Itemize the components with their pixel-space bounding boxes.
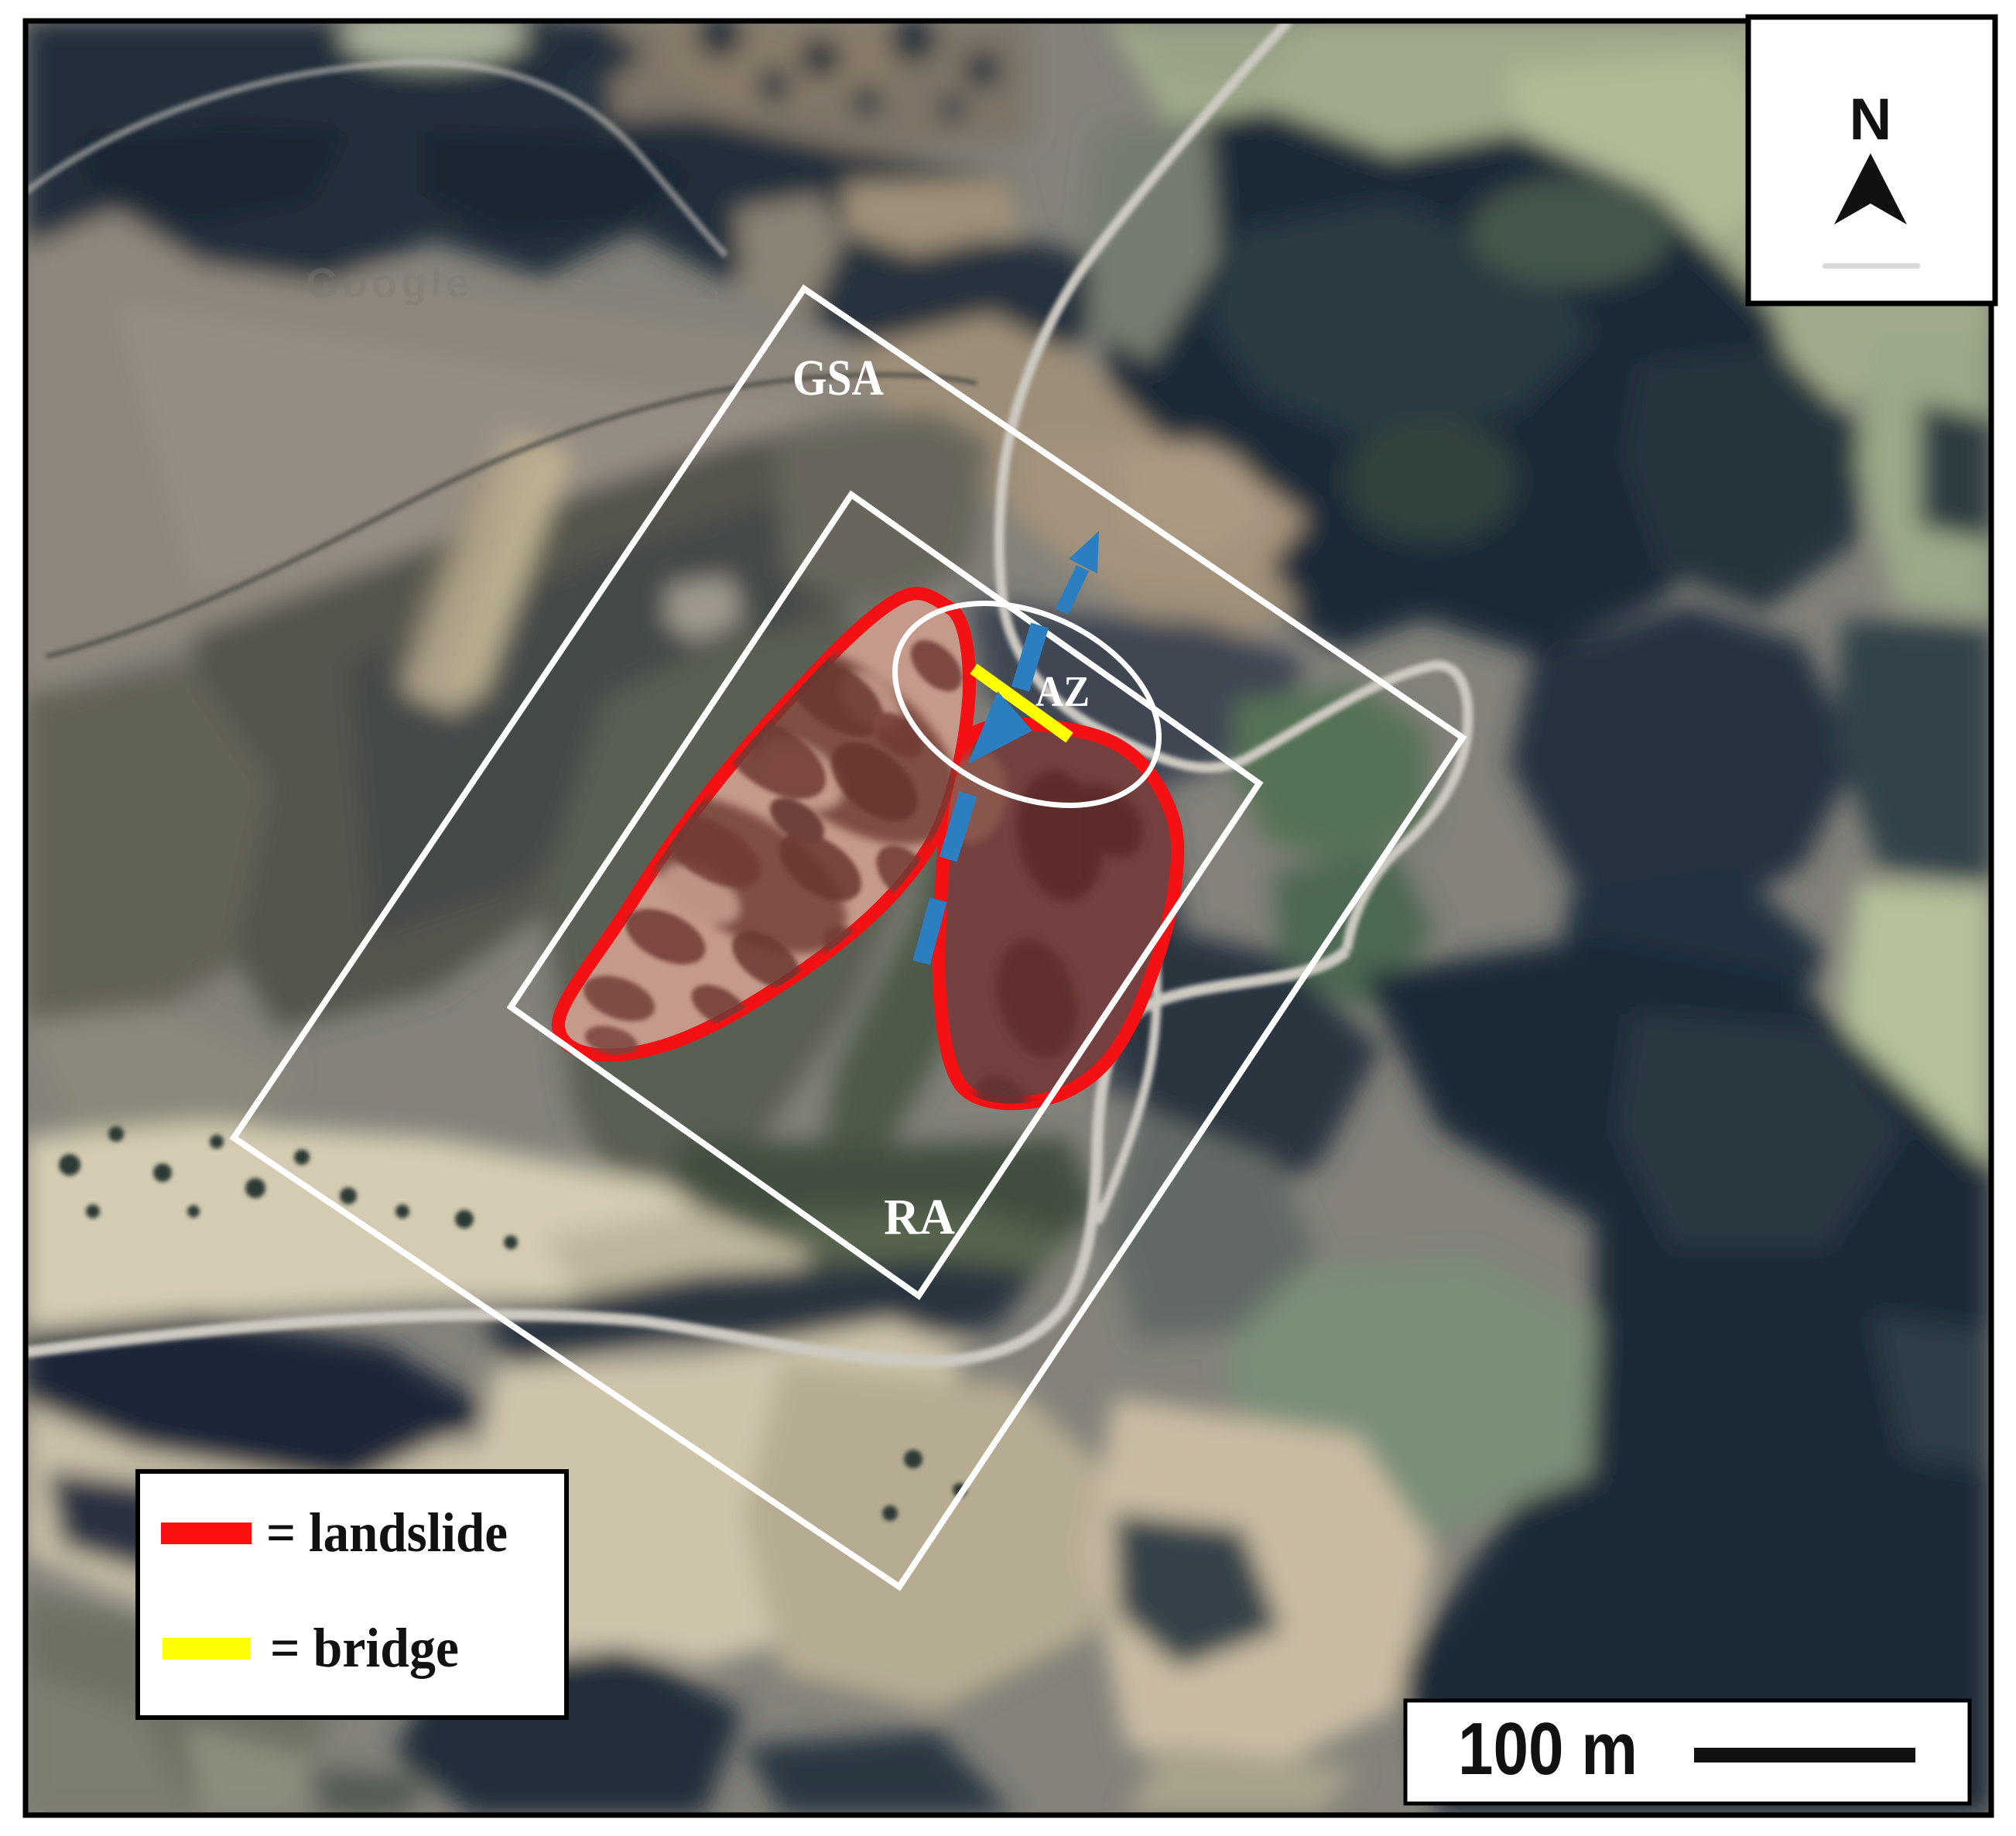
svg-text:RA: RA <box>884 1189 955 1245</box>
svg-text:AZ: AZ <box>1035 668 1090 716</box>
svg-text:N: N <box>1850 87 1892 152</box>
svg-text:= bridge: = bridge <box>270 1617 459 1679</box>
svg-text:100 m: 100 m <box>1458 1708 1638 1790</box>
svg-text:= landslide: = landslide <box>266 1502 508 1564</box>
svg-text:GSA: GSA <box>792 350 884 406</box>
svg-text:Google: Google <box>306 260 473 307</box>
